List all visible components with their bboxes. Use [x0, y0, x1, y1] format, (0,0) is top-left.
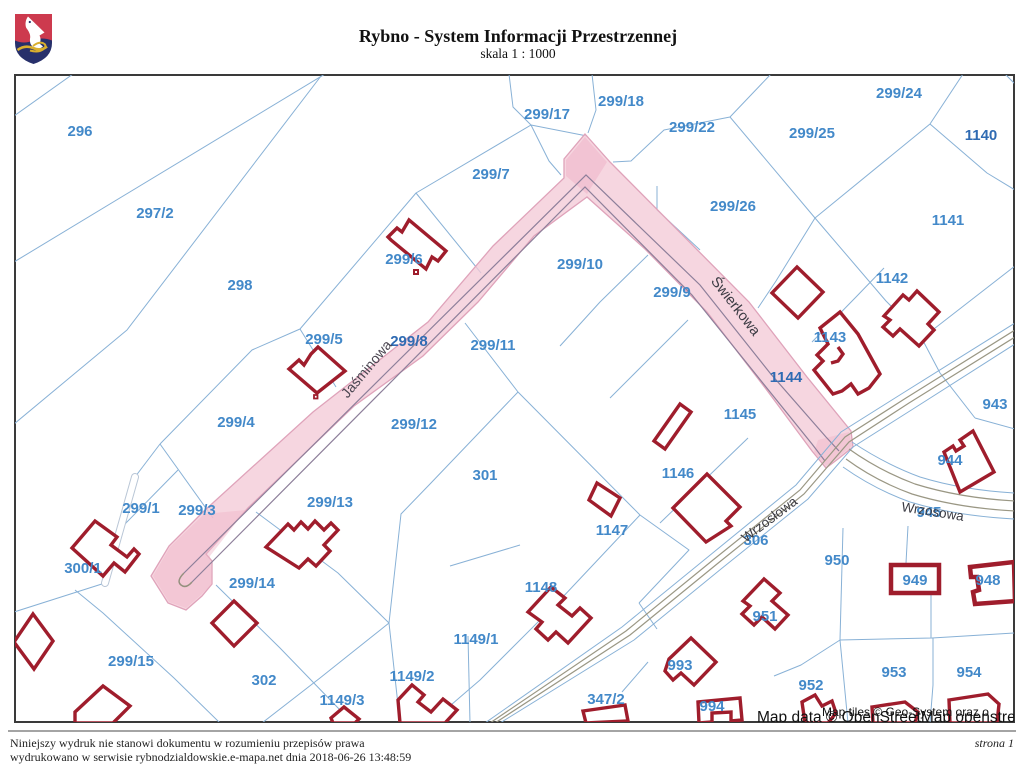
svg-text:299/8: 299/8 — [390, 333, 428, 350]
svg-text:299/10: 299/10 — [557, 256, 603, 273]
svg-text:299/14: 299/14 — [229, 575, 276, 592]
svg-text:1149/1: 1149/1 — [453, 631, 498, 648]
svg-text:skala 1 : 1000: skala 1 : 1000 — [480, 46, 556, 61]
svg-text:299/17: 299/17 — [524, 106, 570, 123]
svg-text:994: 994 — [699, 698, 725, 715]
svg-text:299/18: 299/18 — [598, 93, 644, 110]
svg-text:299/26: 299/26 — [710, 198, 756, 215]
svg-text:951: 951 — [752, 608, 777, 625]
svg-text:1143: 1143 — [814, 329, 847, 346]
svg-text:299/9: 299/9 — [653, 284, 691, 301]
svg-text:299/1: 299/1 — [122, 500, 160, 517]
svg-text:1149/3: 1149/3 — [319, 692, 364, 709]
svg-text:944: 944 — [937, 452, 963, 469]
svg-text:1144: 1144 — [770, 369, 803, 386]
svg-text:Rybno - System Informacji Prze: Rybno - System Informacji Przestrzennej — [359, 26, 677, 46]
svg-text:299/24: 299/24 — [876, 85, 923, 102]
svg-text:948: 948 — [975, 572, 1000, 589]
svg-text:993: 993 — [667, 657, 692, 674]
svg-text:299/13: 299/13 — [307, 494, 353, 511]
svg-text:299/22: 299/22 — [669, 119, 715, 136]
svg-text:1141: 1141 — [932, 212, 965, 229]
svg-text:1147: 1147 — [596, 522, 629, 539]
svg-text:300/1: 300/1 — [64, 560, 102, 577]
svg-text:301: 301 — [472, 467, 497, 484]
svg-text:297/2: 297/2 — [136, 205, 174, 222]
svg-text:299/4: 299/4 — [217, 414, 255, 431]
svg-text:299/11: 299/11 — [470, 337, 515, 354]
svg-text:strona 1: strona 1 — [975, 736, 1014, 750]
svg-text:952: 952 — [798, 677, 823, 694]
svg-text:1142: 1142 — [876, 270, 909, 287]
svg-text:299/7: 299/7 — [472, 166, 510, 183]
svg-text:296: 296 — [67, 123, 92, 140]
svg-text:299/6: 299/6 — [385, 251, 423, 268]
svg-text:1146: 1146 — [662, 465, 695, 482]
svg-text:299/12: 299/12 — [391, 416, 437, 433]
svg-text:1148: 1148 — [525, 579, 558, 596]
svg-text:1145: 1145 — [724, 406, 757, 423]
svg-text:943: 943 — [982, 396, 1007, 413]
svg-text:347/2: 347/2 — [587, 691, 625, 708]
svg-text:299/25: 299/25 — [789, 125, 835, 142]
svg-text:298: 298 — [227, 277, 252, 294]
svg-text:299/15: 299/15 — [108, 653, 154, 670]
svg-text:wydrukowano w serwisie rybnodz: wydrukowano w serwisie rybnodzialdowskie… — [10, 750, 411, 764]
svg-text:949: 949 — [902, 572, 927, 589]
svg-text:Niniejszy wydruk nie stanowi d: Niniejszy wydruk nie stanowi dokumentu w… — [10, 736, 365, 750]
svg-text:Map data © OpenStreetMap opens: Map data © OpenStreetMap openstreetr — [757, 709, 1024, 726]
svg-text:953: 953 — [881, 664, 906, 681]
svg-text:302: 302 — [251, 672, 276, 689]
svg-text:950: 950 — [824, 552, 849, 569]
svg-text:299/3: 299/3 — [178, 502, 216, 519]
svg-text:954: 954 — [956, 664, 982, 681]
svg-text:1140: 1140 — [965, 127, 998, 144]
svg-text:299/5: 299/5 — [305, 331, 343, 348]
svg-text:1149/2: 1149/2 — [389, 668, 434, 685]
